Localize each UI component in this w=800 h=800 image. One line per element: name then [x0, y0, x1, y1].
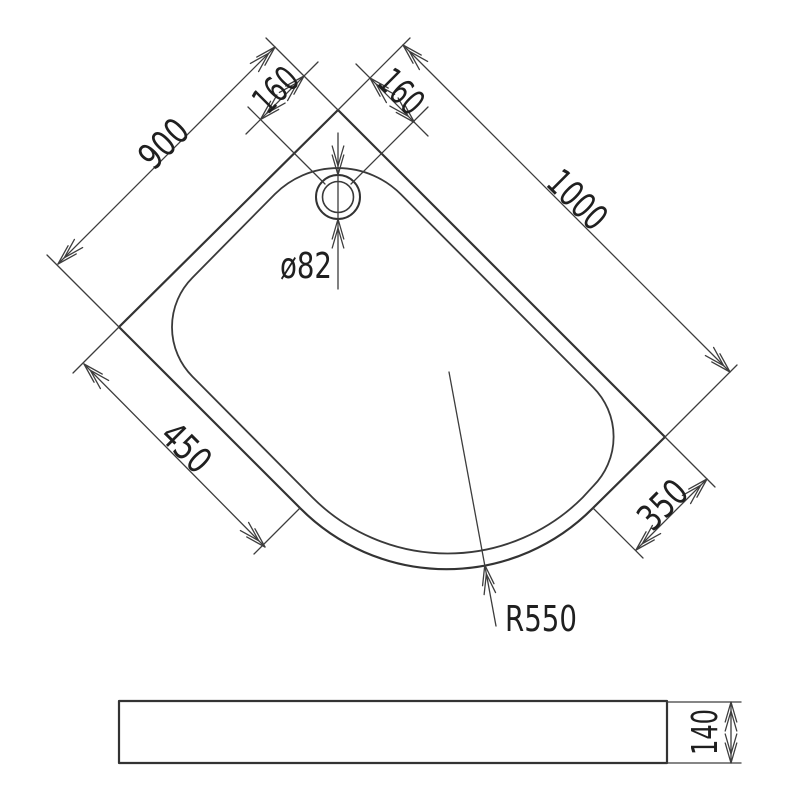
- dim-450-label: 450: [152, 415, 219, 482]
- tray-inner-outline: [172, 168, 614, 553]
- dim-r550-leader-line: [449, 372, 496, 626]
- side-view: 140: [119, 701, 741, 763]
- dim-drain-diameter: ø82: [280, 133, 344, 289]
- dim-900-label: 900: [131, 111, 198, 178]
- dim-160-left: 160: [245, 59, 325, 184]
- dim-front-radius: R550: [449, 372, 577, 640]
- technical-drawing-page: 900 1000 160 160: [0, 0, 800, 800]
- drawing-svg: 900 1000 160 160: [0, 0, 800, 800]
- dim-front-radius-label: R550: [505, 599, 577, 640]
- dim-450-extension-corner: [73, 327, 119, 373]
- dim-450: 450: [73, 327, 300, 554]
- profile-rect: [119, 701, 667, 763]
- dim-160-right: 160: [351, 61, 432, 184]
- plan-view: 900 1000 160 160: [47, 38, 737, 640]
- dim-140: 140: [667, 702, 741, 763]
- dim-1000-label: 1000: [538, 162, 615, 239]
- dim-900-extension-corner: [47, 255, 119, 327]
- dim-drain-diameter-label: ø82: [280, 246, 332, 287]
- dim-140-label: 140: [685, 709, 726, 755]
- dim-350-label: 350: [630, 472, 697, 539]
- dim-160-left-extension-drain: [248, 107, 325, 184]
- dim-160-right-label: 160: [369, 61, 432, 124]
- dim-450-extension-arc: [254, 508, 300, 554]
- dim-1000-extension-corner: [665, 365, 737, 437]
- dim-160-right-extension-drain: [351, 107, 428, 184]
